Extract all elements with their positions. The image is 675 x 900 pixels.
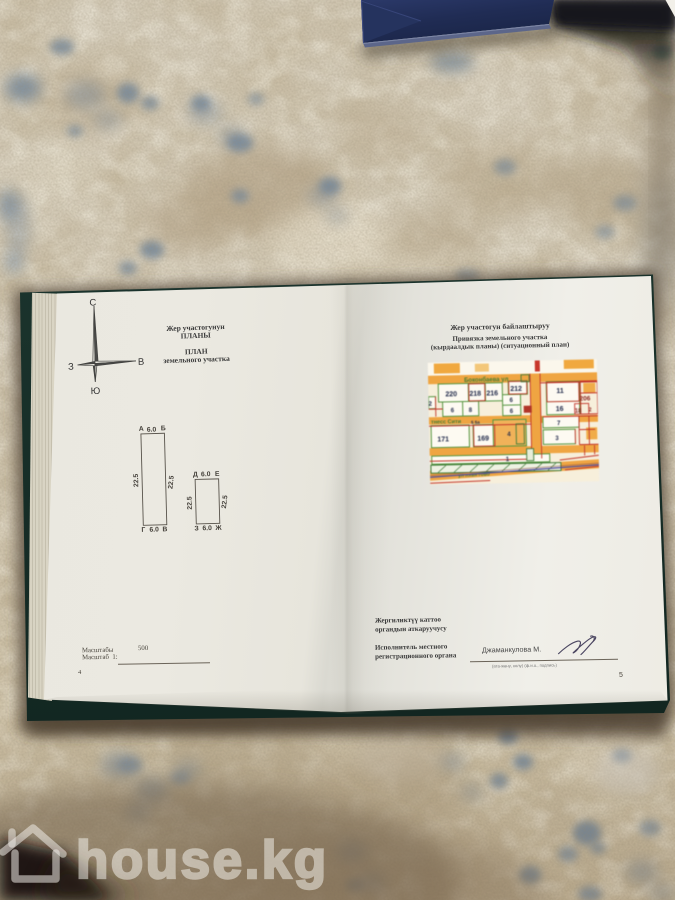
svg-text:house.kg: house.kg	[76, 831, 329, 890]
